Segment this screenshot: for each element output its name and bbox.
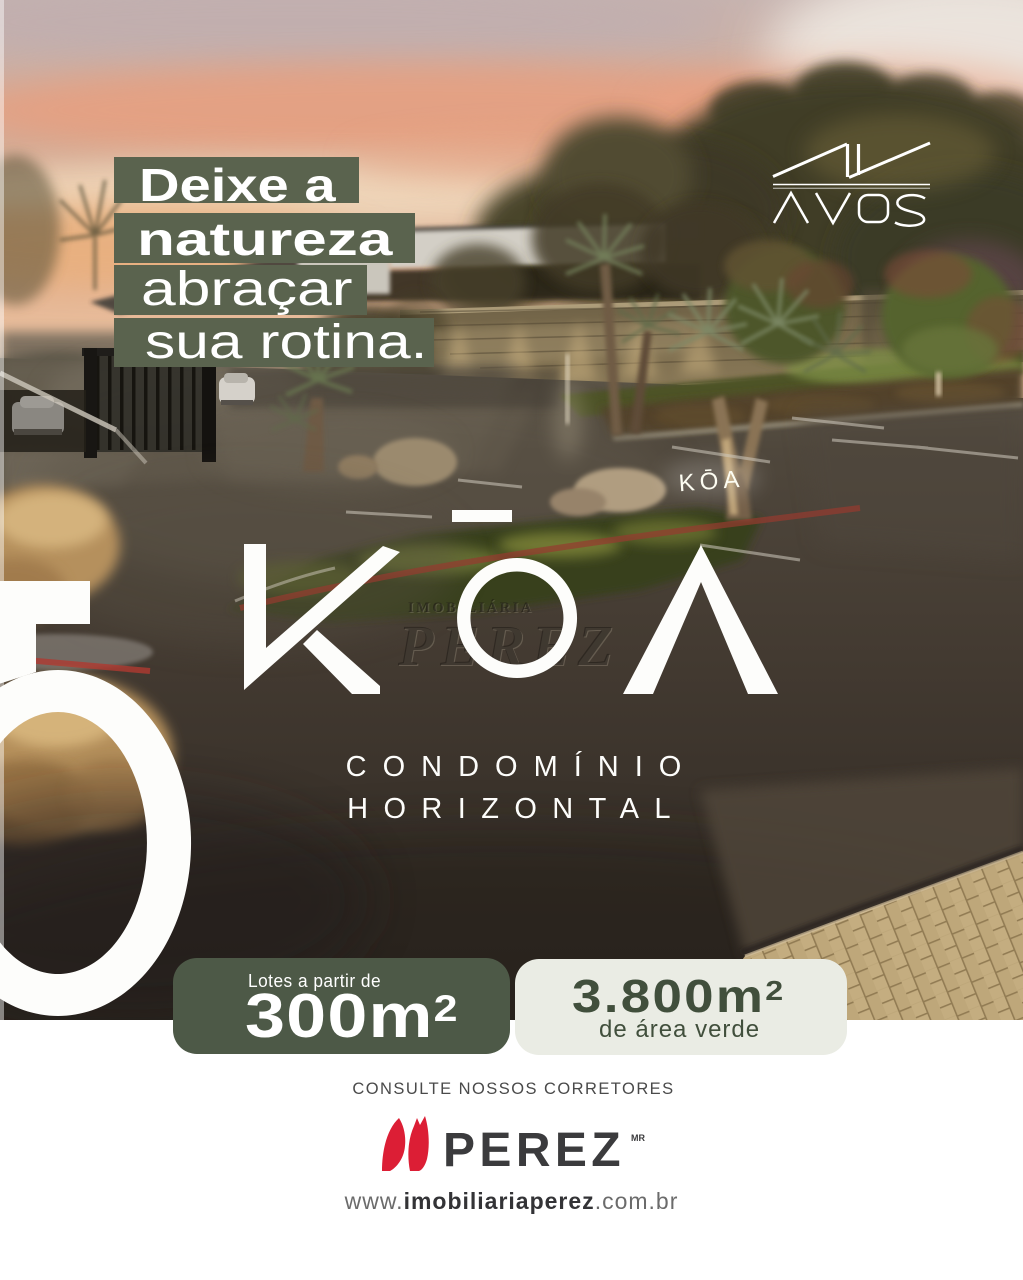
svg-text:KŌA: KŌA — [678, 466, 745, 498]
